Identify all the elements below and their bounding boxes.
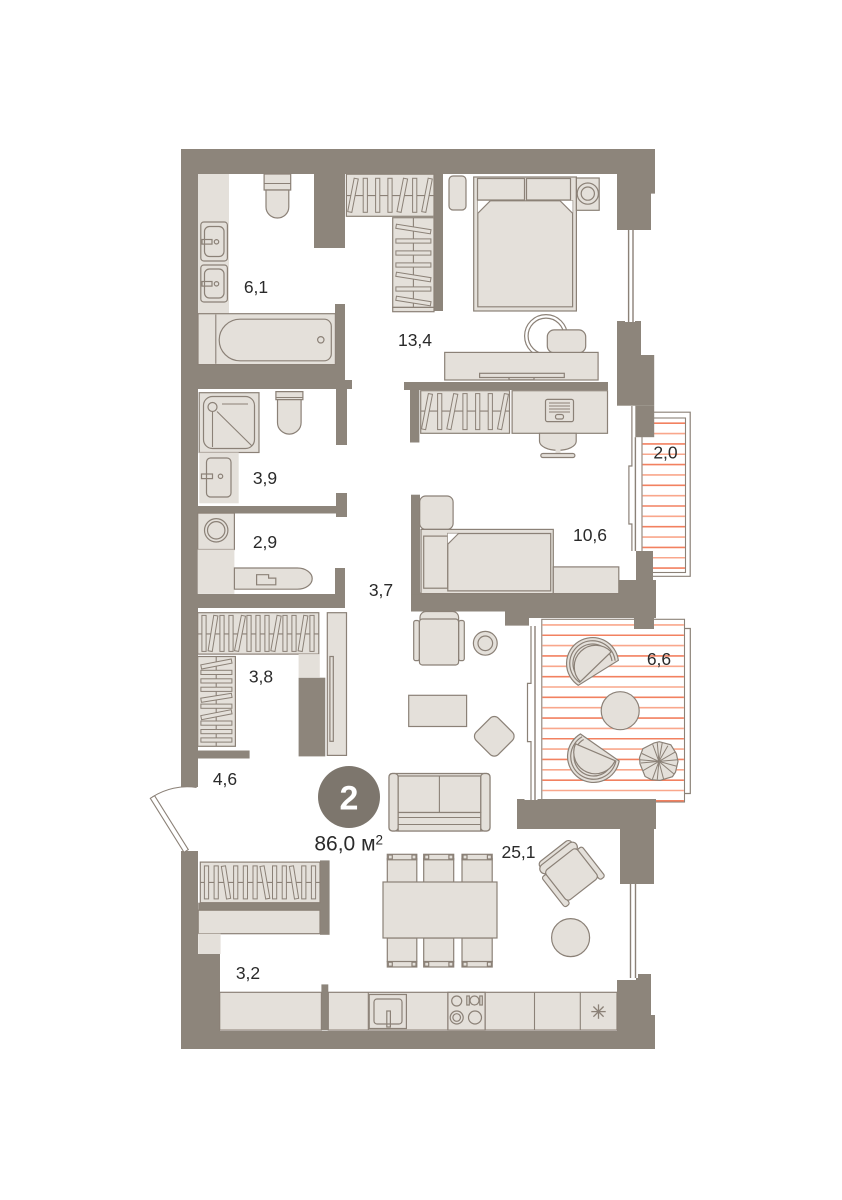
svg-text:2,9: 2,9 [253,532,277,552]
svg-text:3,2: 3,2 [236,963,260,983]
svg-text:10,6: 10,6 [573,525,607,545]
svg-text:6,6: 6,6 [647,649,671,669]
svg-text:2: 2 [340,780,359,818]
svg-text:3,9: 3,9 [253,468,277,488]
svg-text:86,0 м2: 86,0 м2 [314,833,383,856]
svg-text:3,7: 3,7 [369,580,393,600]
svg-text:6,1: 6,1 [244,277,268,297]
svg-text:25,1: 25,1 [501,842,535,862]
svg-text:4,6: 4,6 [213,769,237,789]
svg-text:13,4: 13,4 [398,330,432,350]
svg-text:3,8: 3,8 [249,667,273,687]
svg-text:2,0: 2,0 [653,443,678,463]
